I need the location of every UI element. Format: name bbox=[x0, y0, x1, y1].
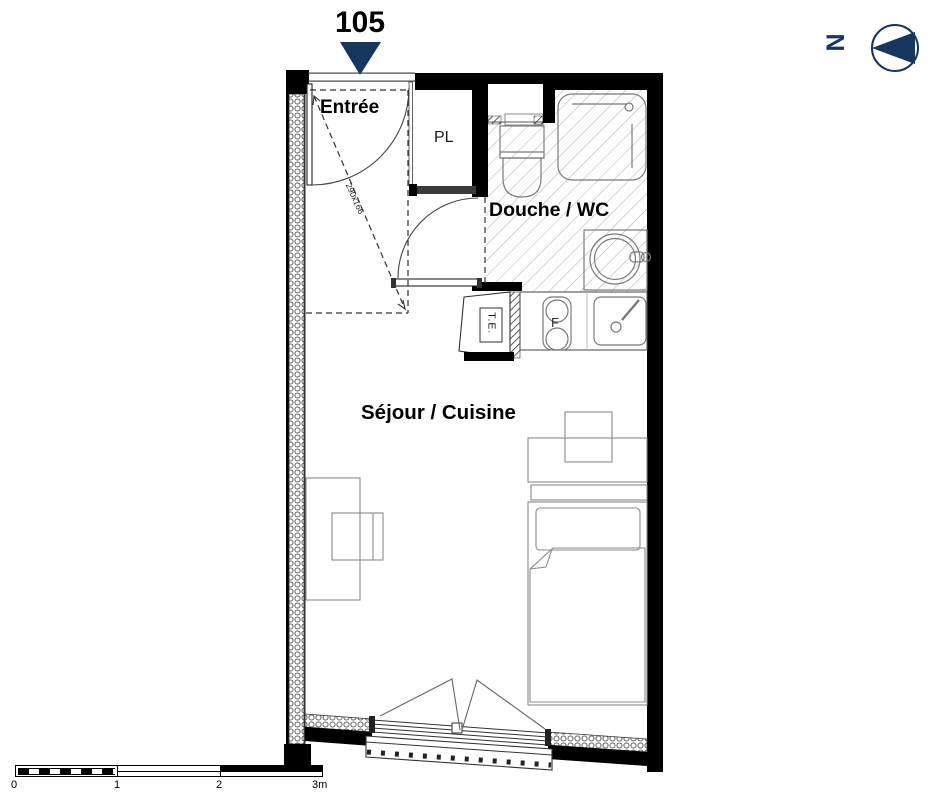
scale-midline bbox=[118, 771, 219, 772]
bathroom-door-swing-arc bbox=[398, 198, 478, 278]
kitchen-divider-wall bbox=[510, 292, 520, 358]
closet-front bbox=[411, 186, 484, 194]
scale-segment-1 bbox=[16, 766, 117, 776]
living-room-furniture bbox=[306, 412, 647, 705]
bed-headboard bbox=[528, 438, 647, 482]
room-label-entree: Entrée bbox=[320, 98, 379, 117]
stove-letter: F bbox=[551, 316, 559, 329]
closet-wall bbox=[409, 82, 413, 186]
bathroom-door-leaf bbox=[393, 279, 480, 286]
scale-tick-2: 2 bbox=[216, 780, 222, 791]
scale-dash-pattern bbox=[18, 768, 115, 775]
wall-niche bbox=[488, 84, 543, 125]
pillow bbox=[536, 508, 640, 550]
scale-tick-3: 3m bbox=[312, 780, 327, 791]
left-wall-insulation bbox=[289, 94, 304, 744]
desk bbox=[306, 478, 360, 600]
chair bbox=[332, 513, 383, 560]
nightstand bbox=[565, 412, 612, 462]
top-left-wall-block bbox=[286, 70, 309, 94]
bed bbox=[528, 502, 647, 705]
scale-segment-2 bbox=[117, 766, 219, 776]
niche-east-wall bbox=[543, 84, 555, 123]
bathroom-door bbox=[391, 198, 482, 288]
north-letter: N bbox=[822, 33, 847, 51]
room-label-closet: PL bbox=[434, 130, 454, 146]
bed-shelf bbox=[531, 485, 647, 500]
scale-tick-0: 0 bbox=[11, 780, 17, 791]
kitchen-counter bbox=[520, 292, 647, 350]
bathroom-west-wall bbox=[472, 82, 488, 197]
entrance-marker-triangle bbox=[340, 42, 381, 75]
scale-tick-1: 1 bbox=[114, 780, 120, 791]
floor-plan-canvas: 105 N Entrée PL Douche / WC Séjour / Cui… bbox=[0, 0, 936, 800]
french-window bbox=[369, 679, 551, 746]
right-wall bbox=[647, 73, 663, 772]
entry-door-leaf bbox=[307, 84, 312, 185]
scale-segment-3 bbox=[220, 766, 322, 776]
balcony bbox=[366, 736, 552, 770]
blanket bbox=[530, 548, 645, 702]
electrical-panel-label: T.E. bbox=[486, 303, 497, 343]
unit-number: 105 bbox=[315, 8, 405, 38]
north-compass-icon bbox=[872, 25, 918, 71]
room-label-bathroom: Douche / WC bbox=[489, 201, 609, 221]
room-label-living: Séjour / Cuisine bbox=[361, 403, 516, 424]
scale-bar bbox=[15, 765, 323, 777]
floor-plan-drawing bbox=[0, 0, 936, 800]
casement-swing-left bbox=[380, 679, 460, 730]
